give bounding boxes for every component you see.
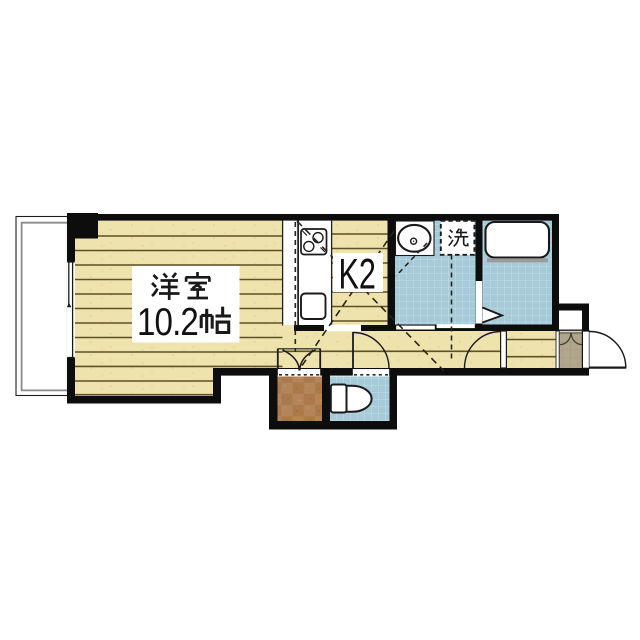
svg-text:10.2: 10.2 <box>137 301 198 344</box>
svg-text:K2: K2 <box>339 249 376 297</box>
